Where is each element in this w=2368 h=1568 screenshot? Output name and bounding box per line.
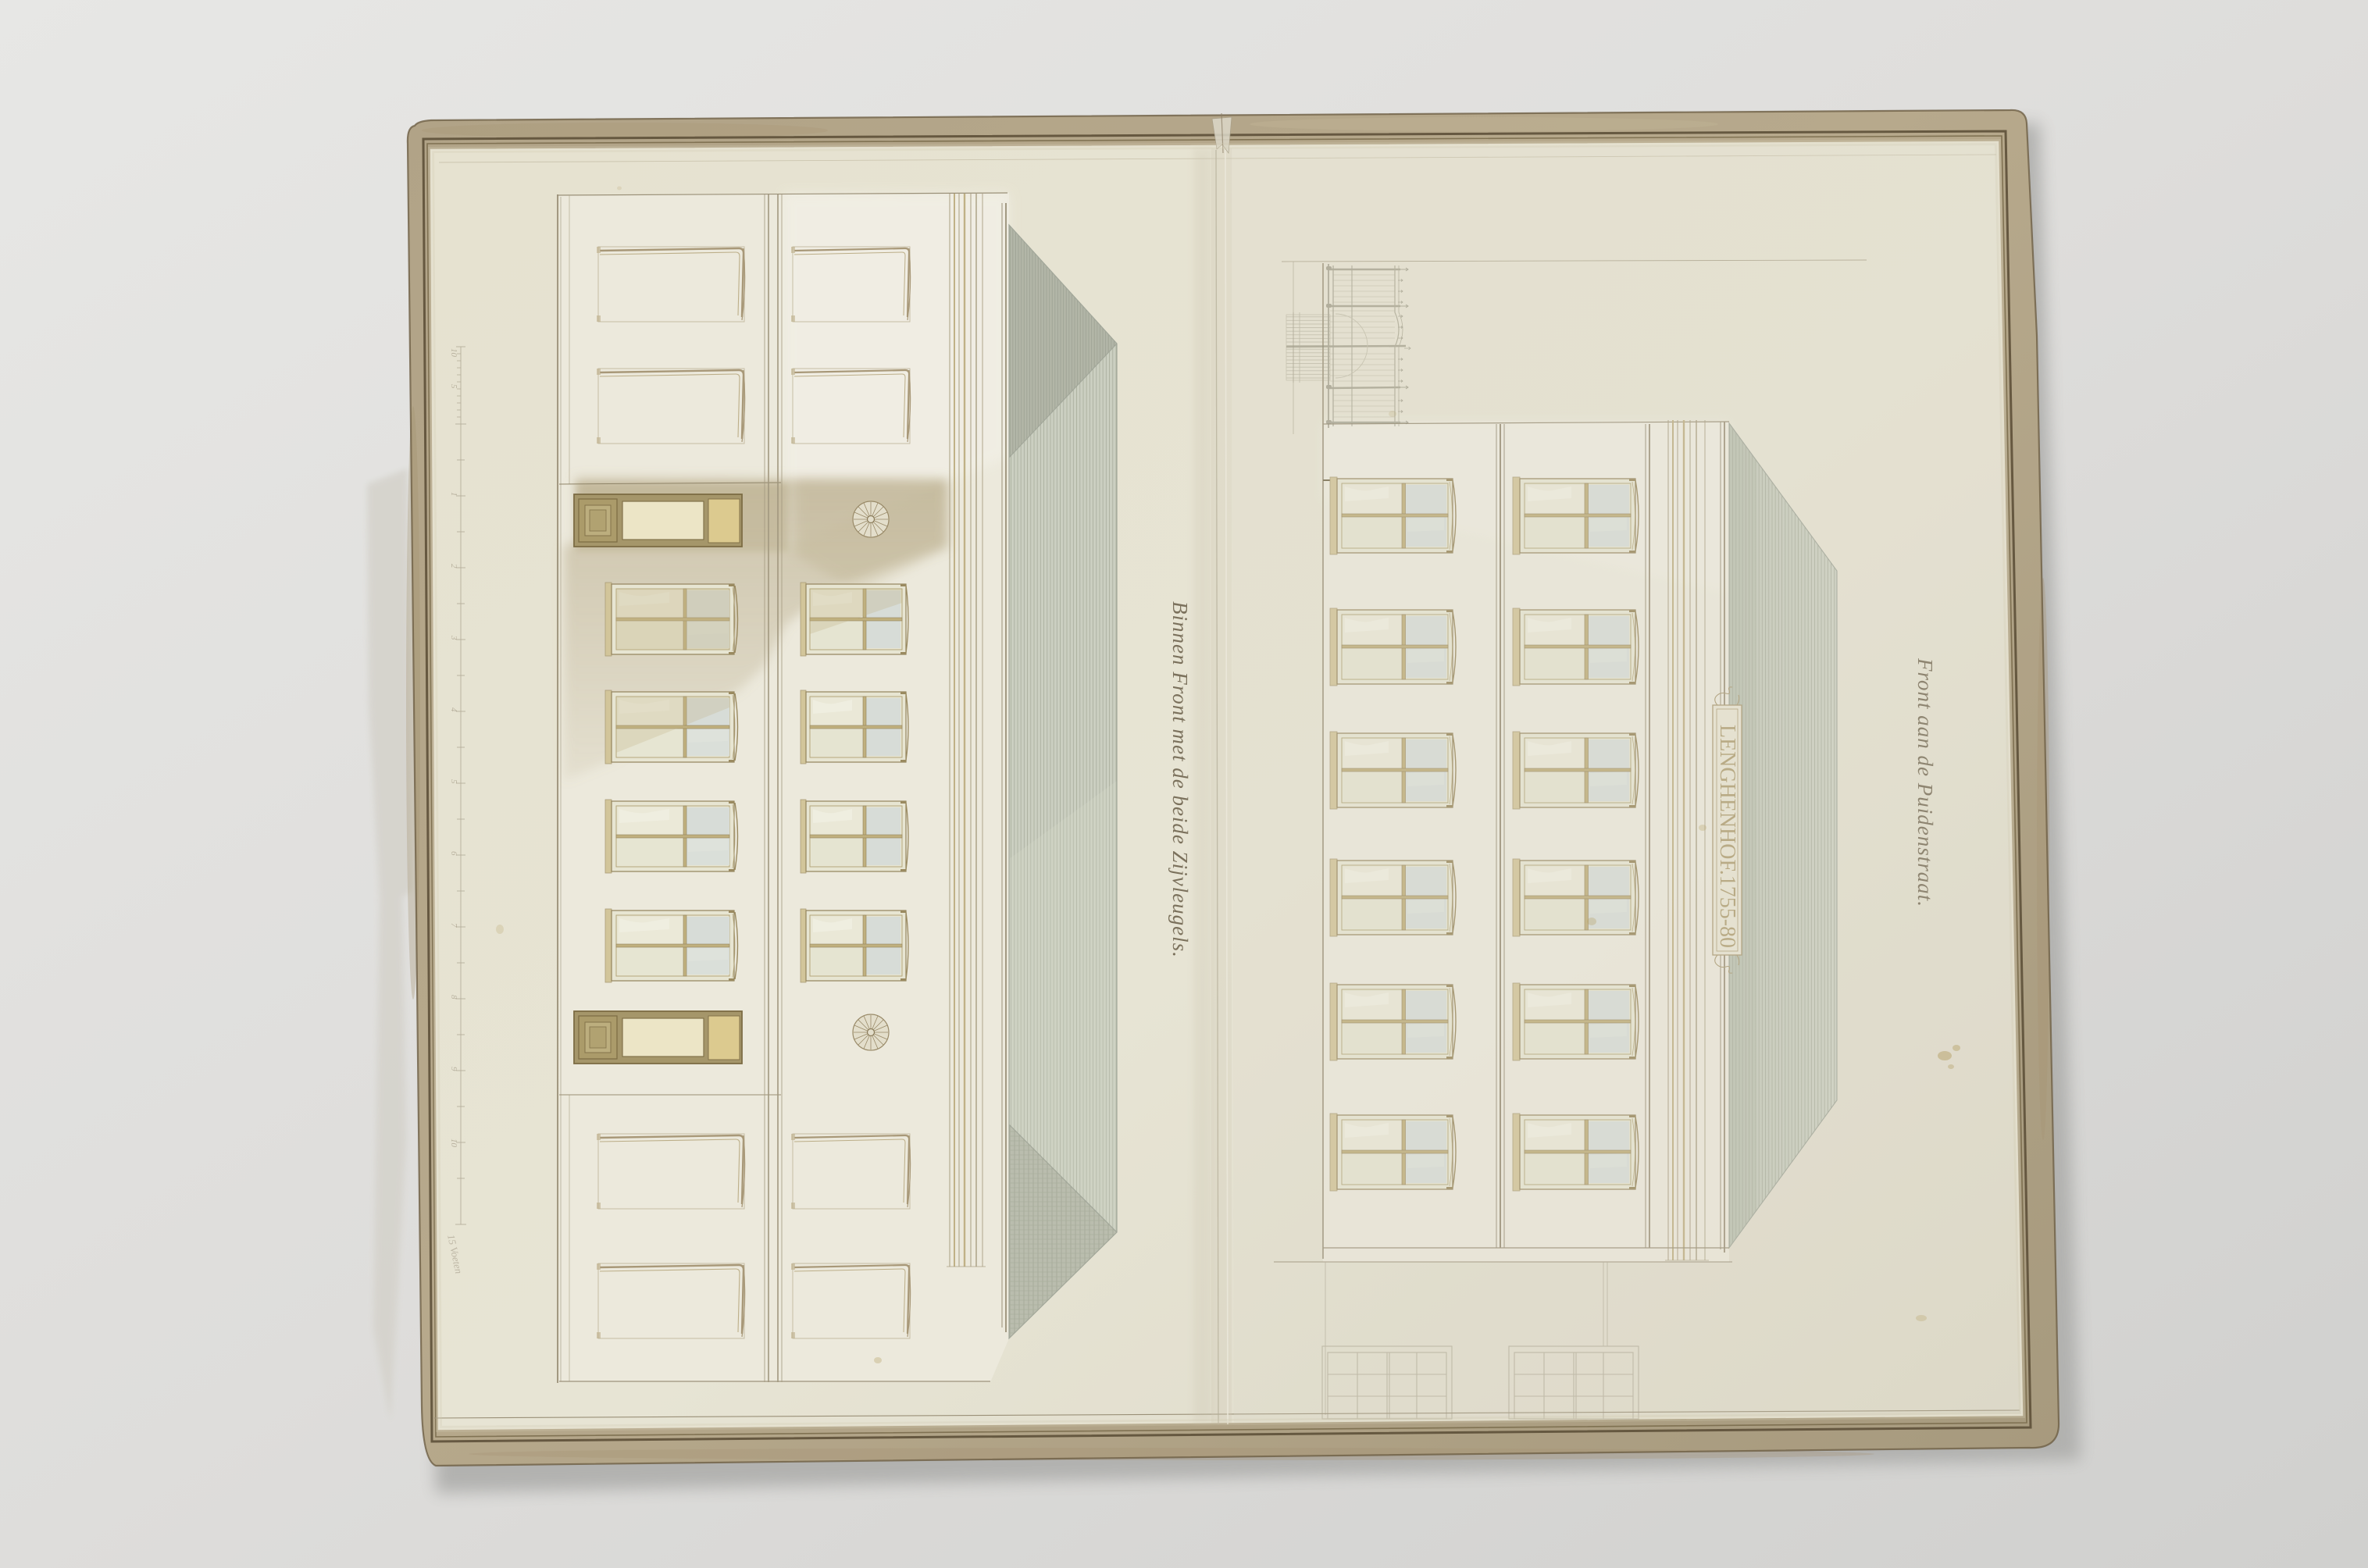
svg-text:6: 6	[449, 851, 458, 856]
svg-text:7: 7	[449, 923, 458, 928]
svg-text:8: 8	[449, 995, 458, 1000]
svg-text:10: 10	[449, 348, 458, 358]
svg-text:5: 5	[449, 384, 458, 389]
svg-text:5: 5	[449, 779, 458, 784]
svg-text:3: 3	[449, 635, 458, 640]
svg-text:2: 2	[449, 564, 458, 568]
svg-text:1: 1	[449, 492, 458, 497]
svg-text:9: 9	[449, 1067, 458, 1071]
svg-text:10: 10	[449, 1139, 458, 1148]
svg-text:4: 4	[449, 707, 458, 712]
svg-text:Binnen Front met de beide Zijv: Binnen Front met de beide Zijvleugels.	[1168, 601, 1192, 958]
